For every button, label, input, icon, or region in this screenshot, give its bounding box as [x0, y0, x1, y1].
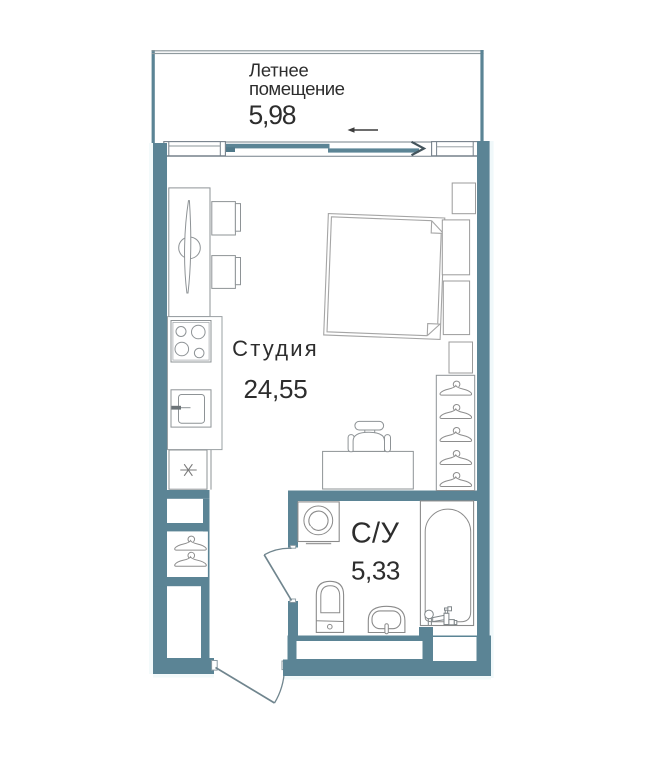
svg-text:Студия: Студия	[232, 336, 319, 361]
svg-text:помещение: помещение	[249, 78, 345, 99]
svg-text:24,55: 24,55	[243, 374, 307, 404]
svg-text:С/У: С/У	[351, 518, 400, 550]
svg-text:5,98: 5,98	[249, 100, 296, 130]
svg-text:5,33: 5,33	[351, 556, 400, 586]
